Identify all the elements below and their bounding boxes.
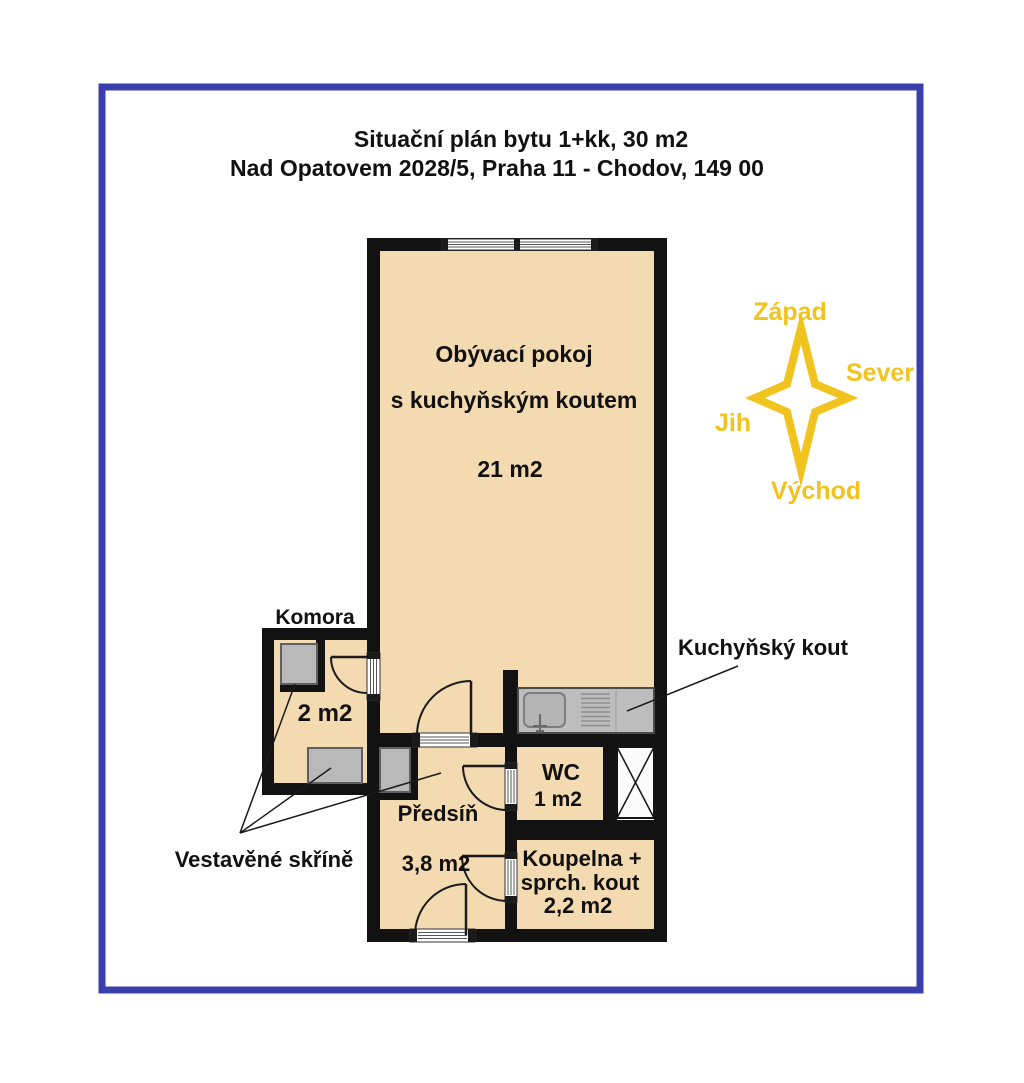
window <box>442 239 597 250</box>
jamb-block <box>413 733 420 747</box>
shaft <box>617 747 654 818</box>
title-line-1: Situační plán bytu 1+kk, 30 m2 <box>354 126 688 152</box>
wall-predsin-niche-horizontal <box>378 792 418 800</box>
predsin-area: 3,8 m2 <box>402 851 471 876</box>
living-room-area: 21 m2 <box>477 456 542 482</box>
wall-komora-top <box>262 628 380 640</box>
living-room-label: Obývací pokoj <box>435 341 592 367</box>
jamb-block <box>468 929 475 942</box>
compass-label-vychod: Východ <box>771 477 861 505</box>
jamb-block <box>367 694 380 700</box>
komora-label: Komora <box>275 606 355 629</box>
kitchen-counter <box>518 688 654 733</box>
wall-komora-bottom <box>262 783 380 795</box>
compass-label-zapad: Západ <box>753 298 827 326</box>
koupelna-area: 2,2 m2 <box>544 893 613 918</box>
predsin-label: Předsíň <box>398 801 479 826</box>
komora-area: 2 m2 <box>298 700 353 727</box>
jamb-block <box>470 733 477 747</box>
window-mullion <box>591 239 597 250</box>
compass-label-sever: Sever <box>846 359 914 387</box>
wc-label: WC <box>542 759 580 785</box>
living-room-floor <box>380 251 654 733</box>
wardrobe-komora-top <box>281 644 317 684</box>
window-mullion <box>442 239 448 250</box>
koupelna-label: Koupelna + <box>522 846 641 871</box>
compass-label-jih: Jih <box>715 409 751 437</box>
wall-counter-stub <box>503 670 518 733</box>
kitchen-callout-label: Kuchyňský kout <box>678 635 849 660</box>
window-mullion <box>514 239 520 250</box>
living-room-sublabel: s kuchyňským koutem <box>391 387 638 413</box>
wardrobes-callout-label: Vestavěné skříně <box>175 847 354 872</box>
floor-plan-canvas: Situační plán bytu 1+kk, 30 m2 Nad Opato… <box>0 0 1024 1083</box>
koupelna-sublabel: sprch. kout <box>521 870 640 895</box>
jamb-block <box>367 653 380 659</box>
wall-shaft-left <box>603 747 617 820</box>
wc-area: 1 m2 <box>534 788 582 811</box>
sink <box>524 693 565 727</box>
title-line-2: Nad Opatovem 2028/5, Praha 11 - Chodov, … <box>230 155 764 181</box>
wall-left <box>367 238 380 942</box>
wardrobe-predsin <box>380 748 410 792</box>
wall-mid-horizontal <box>367 733 667 747</box>
wall-wc-koupelna <box>505 820 667 840</box>
